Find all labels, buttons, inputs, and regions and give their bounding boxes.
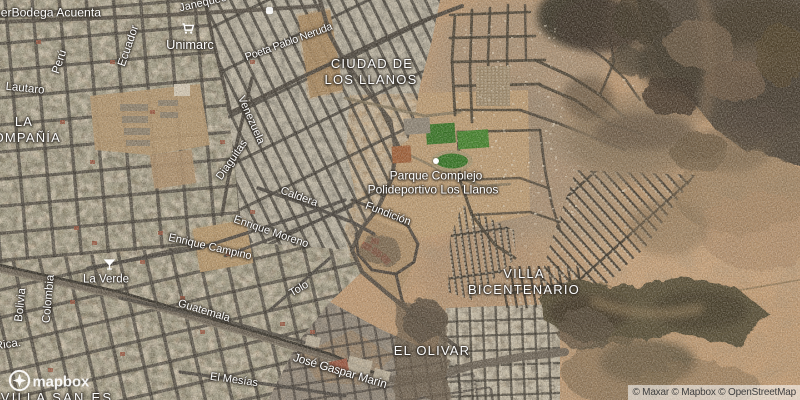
svg-text:mapbox: mapbox	[33, 375, 91, 391]
